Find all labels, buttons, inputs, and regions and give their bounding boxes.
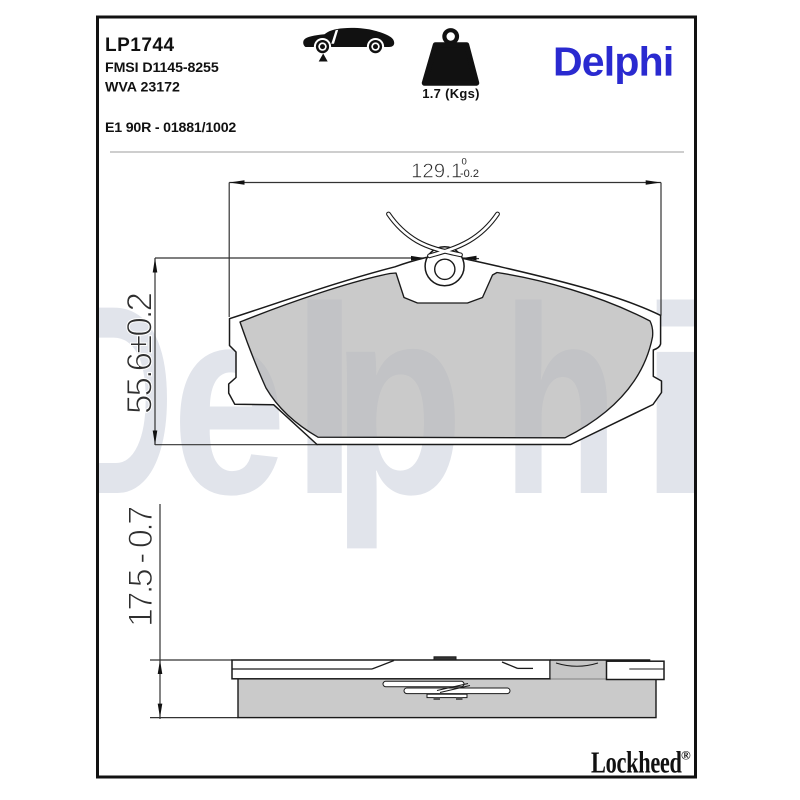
svg-text:LP1744: LP1744 [105,35,175,56]
svg-text:0: 0 [462,157,467,168]
svg-text:Lockheed: Lockheed [591,745,682,779]
svg-text:55.6±0.2: 55.6±0.2 [121,293,160,414]
svg-text:Delphi: Delphi [553,39,673,85]
svg-text:129.1: 129.1 [411,160,462,183]
svg-text:E1 90R - 01881/1002: E1 90R - 01881/1002 [105,120,236,136]
svg-text:-0.2: -0.2 [460,168,479,180]
svg-text:17.5 - 0.7: 17.5 - 0.7 [122,507,160,627]
svg-text:FMSI D1145-8255: FMSI D1145-8255 [105,60,219,76]
svg-text:1.7 (Kgs): 1.7 (Kgs) [422,86,480,101]
svg-text:®: ® [681,748,691,763]
svg-text:WVA 23172: WVA 23172 [105,80,180,96]
